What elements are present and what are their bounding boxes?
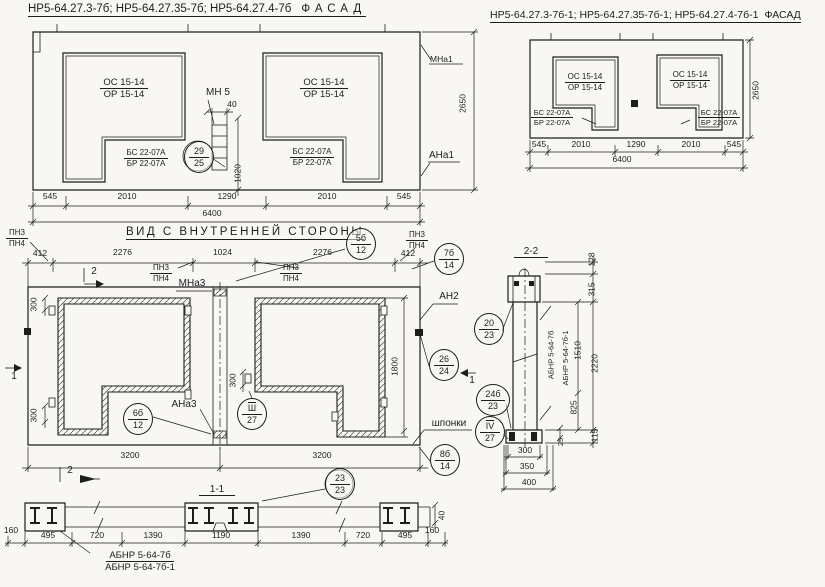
dim-1390-l: 1390 bbox=[133, 531, 173, 540]
dim-1190: 1190 bbox=[201, 531, 241, 540]
facade-right-window1-mark: ОС 15-14 ОР 15-14 bbox=[560, 72, 610, 92]
callout-23-23: 2323 bbox=[325, 468, 355, 500]
anchor-mna1-label: МНа1 bbox=[430, 55, 470, 64]
section-2-2-title: 2-2 bbox=[514, 246, 548, 258]
dim-1390-r: 1390 bbox=[281, 531, 321, 540]
dim-2010b: 2010 bbox=[307, 192, 347, 201]
dim-495-r: 495 bbox=[385, 531, 425, 540]
dim-40: 40 bbox=[220, 100, 244, 109]
abnr-labels-s11: АБНР 5-64-7б АБНР 5-64-7б-1 bbox=[70, 550, 210, 574]
pn-labels-midleft: ПН3ПН4 bbox=[146, 263, 176, 283]
dim-2650-left: 2650 bbox=[459, 83, 468, 123]
facade-right-title: НР5-64.27.3-7б-1; НР5-64.27.35-7б-1; НР5… bbox=[490, 9, 801, 23]
dim-2276-r: 2276 bbox=[300, 248, 345, 257]
dim-6400: 6400 bbox=[190, 209, 234, 218]
dim-115: 115 bbox=[591, 420, 600, 450]
dim-6400-r: 6400 bbox=[600, 155, 644, 164]
dim-2276-l: 2276 bbox=[100, 248, 145, 257]
callout-26-24: 2624 bbox=[429, 349, 459, 381]
callout-24b-23: 24б23 bbox=[476, 384, 510, 416]
blueprint-sheet: НР5-64.27.3-7б; НР5-64.27.35-7б; НР5-64.… bbox=[0, 0, 825, 587]
dim-1020: 1020 bbox=[234, 153, 243, 193]
section-1-1-title: 1-1 bbox=[199, 484, 235, 496]
callout-7b-14: 7б14 bbox=[434, 243, 464, 275]
facade-left-sill2-mark: БС 22-07А БР 22-07А bbox=[276, 147, 348, 167]
dim-545b: 545 bbox=[384, 192, 424, 201]
callout-8b-14: 8б14 bbox=[430, 444, 460, 476]
dim-2010: 2010 bbox=[107, 192, 147, 201]
anchor-an2-label: АН2 bbox=[432, 292, 466, 303]
facade-left-window2-mark: ОС 15-14 ОР 15-14 bbox=[286, 77, 362, 101]
dim-1800: 1800 bbox=[391, 346, 400, 386]
dim-160-left: 160 bbox=[0, 526, 22, 535]
dim-350-s22: 350 bbox=[510, 462, 544, 471]
dim-3200-left: 3200 bbox=[108, 451, 152, 460]
dim-1024: 1024 bbox=[200, 248, 245, 257]
dim-720-r: 720 bbox=[343, 531, 383, 540]
anchor-ana1-label: АНа1 bbox=[429, 151, 469, 162]
facade-right-window2-mark: ОС 15-14 ОР 15-14 bbox=[665, 70, 715, 90]
facade-right-sill1-mark: БС 22-07А БР 22-07А bbox=[521, 108, 583, 127]
facade-right-linework bbox=[525, 33, 754, 172]
facade-left-window1-mark: ОС 15-14 ОР 15-14 bbox=[86, 77, 162, 101]
abnr-label-1-s22: АБНР 5-64-7б bbox=[548, 307, 556, 402]
section-mark-1-right: 1 bbox=[466, 376, 478, 387]
dim-300-topleft: 300 bbox=[30, 284, 39, 324]
dim-412-r: 412 bbox=[394, 249, 422, 258]
dim-25: 25 bbox=[557, 430, 565, 454]
section-1-1-linework bbox=[5, 470, 448, 553]
dim-300-s22: 300 bbox=[508, 446, 542, 455]
inner-view-title: ВИД С ВНУТРЕННЕЙ СТОРОНЫ bbox=[126, 226, 364, 240]
facade-left-title-fasad: ФАСАД bbox=[301, 3, 366, 15]
dim-495-l: 495 bbox=[28, 531, 68, 540]
dim-825: 825 bbox=[570, 387, 579, 427]
anchor-ana3-label: АНа3 bbox=[166, 400, 202, 411]
section-mark-2-bottom: 2 bbox=[64, 466, 76, 477]
dim-300-bottomleft: 300 bbox=[30, 395, 39, 435]
shponki-label: шпонки bbox=[424, 419, 474, 430]
callout-sh-27: Ш27 bbox=[237, 398, 267, 430]
facade-right-title-fasad: ФАСАД bbox=[764, 9, 800, 21]
dim-545b-r: 545 bbox=[714, 140, 754, 149]
callout-20-23: 2023 bbox=[474, 313, 504, 345]
section-mark-2-top: 2 bbox=[88, 267, 100, 278]
facade-left-title: НР5-64.27.3-7б; НР5-64.27.35-7б; НР5-64.… bbox=[28, 3, 366, 17]
facade-left-sill1-mark: БС 22-07А БР 22-07А bbox=[110, 148, 182, 168]
dim-2220: 2220 bbox=[591, 343, 600, 383]
dim-128: 128 bbox=[588, 244, 597, 274]
dim-720-l: 720 bbox=[77, 531, 117, 540]
mn5-label: МН 5 bbox=[200, 88, 236, 99]
facade-right-sill2-mark: БС 22-07А БР 22-07А bbox=[688, 108, 750, 127]
facade-left-title-marks: НР5-64.27.3-7б; НР5-64.27.35-7б; НР5-64.… bbox=[28, 3, 291, 15]
callout-29-25: 29 25 bbox=[184, 141, 214, 173]
dim-545-r: 545 bbox=[519, 140, 559, 149]
facade-right-title-marks: НР5-64.27.3-7б-1; НР5-64.27.35-7б-1; НР5… bbox=[490, 9, 758, 21]
dim-400-s22: 400 bbox=[512, 478, 546, 487]
section-mark-1-left: 1 bbox=[8, 372, 20, 383]
anchor-mna3-label: МНа3 bbox=[174, 279, 210, 290]
pn-labels-midright: ПН3ПН4 bbox=[276, 263, 306, 283]
dim-1290-r: 1290 bbox=[616, 140, 656, 149]
dim-300-mid: 300 bbox=[229, 360, 238, 400]
dim-2010b-r: 2010 bbox=[671, 140, 711, 149]
dim-2010-r: 2010 bbox=[561, 140, 601, 149]
callout-6b-12: 6б12 bbox=[123, 403, 153, 435]
dim-40-s11: 40 bbox=[438, 503, 447, 527]
callout-5b-12: 5б12 bbox=[346, 228, 376, 260]
dim-545: 545 bbox=[30, 192, 70, 201]
callout-iv-27: IV27 bbox=[475, 416, 505, 448]
dim-3200-right: 3200 bbox=[300, 451, 344, 460]
dim-315: 315 bbox=[588, 274, 597, 304]
dim-1290: 1290 bbox=[207, 192, 247, 201]
dim-1510: 1510 bbox=[574, 330, 583, 370]
dim-2650-right: 2650 bbox=[752, 70, 761, 110]
dim-412-l: 412 bbox=[26, 249, 54, 258]
pn-labels-topleft: ПН3ПН4 bbox=[2, 228, 32, 248]
